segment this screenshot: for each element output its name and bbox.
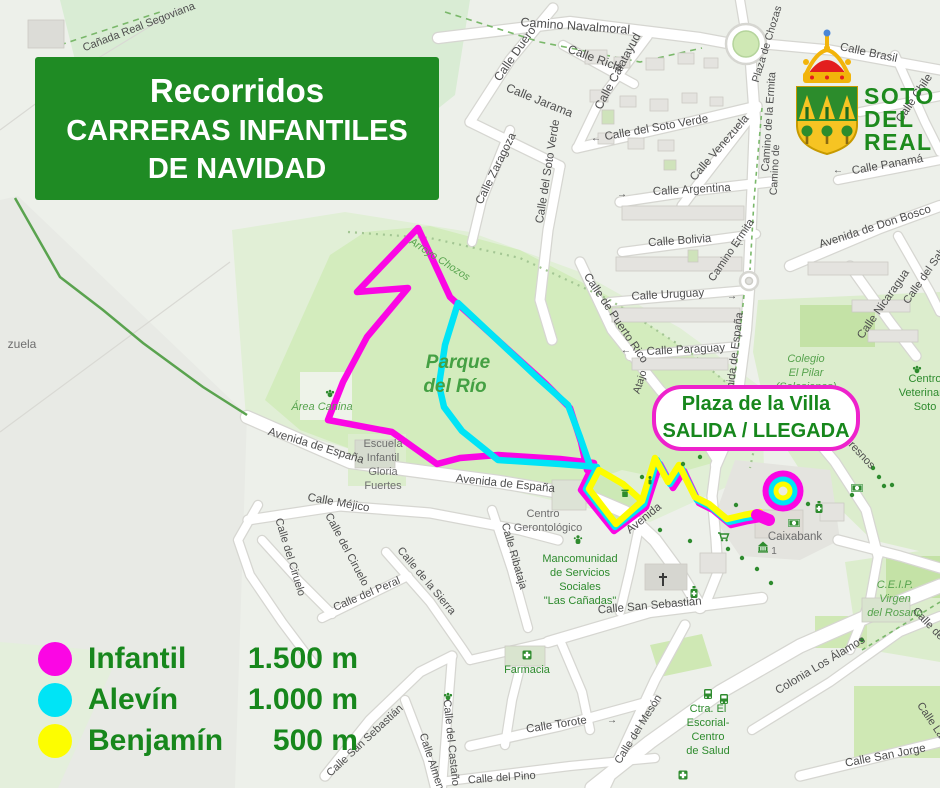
map-label: Calle del Ciruelo (322, 511, 370, 588)
route-legend: Infantil 1.500 m Alevín 1.000 m Benjamín… (38, 642, 358, 758)
map-label: Gloria (368, 466, 398, 478)
roundabout-center (733, 31, 759, 57)
building (710, 97, 723, 106)
tree-dot (698, 455, 702, 459)
building (646, 58, 664, 70)
start-finish-marker (779, 487, 788, 496)
building (808, 262, 888, 275)
road-segment (740, 0, 744, 24)
map-label: Área Canina (290, 400, 352, 413)
title-banner: Recorridos CARRERAS INFANTILES DE NAVIDA… (35, 57, 439, 200)
map-label: → (607, 715, 617, 726)
building (612, 308, 740, 322)
map-label: Calle Argentina (653, 182, 732, 198)
legend-label: Infantil (88, 642, 238, 676)
map-label: ← (735, 238, 745, 249)
map-label: Gerontológico (514, 522, 583, 534)
building (602, 110, 614, 124)
building (688, 250, 698, 262)
map-label: Caixabank (768, 531, 823, 543)
map-label: Camino de (768, 144, 783, 195)
legend-row-alevin: Alevín 1.000 m (38, 683, 358, 717)
money-icon (788, 519, 800, 527)
tree-dot (688, 539, 692, 543)
map-label: Veterinario (899, 387, 940, 399)
legend-distance: 1.500 m (238, 642, 358, 676)
legend-row-benjamin: Benjamín 500 m (38, 724, 358, 758)
cross-icon (523, 651, 532, 660)
alevin-color-dot (38, 683, 72, 717)
tree-dot (726, 547, 730, 551)
legend-label: Benjamín (88, 724, 238, 758)
building (650, 99, 668, 111)
callout-line-2: SALIDA / LLEGADA (662, 418, 849, 445)
building (678, 53, 694, 64)
bus-icon (704, 689, 712, 699)
road-segment (386, 552, 470, 660)
title-line-2: CARRERAS INFANTILES (66, 115, 408, 148)
map-label: Avenida de Don Bosco (818, 203, 933, 251)
tree-dot (882, 484, 886, 488)
title-line-1: Recorridos (150, 72, 324, 110)
map-label: zuela (8, 337, 37, 351)
map-label: Colegio (787, 353, 824, 365)
map-label: Farmacia (504, 664, 551, 676)
people-icon (574, 535, 582, 544)
building (28, 20, 64, 48)
map-label: Virgen (879, 593, 911, 605)
building (628, 138, 644, 149)
money-icon (851, 484, 863, 492)
map-label: → (727, 291, 737, 302)
map-label: Escuela (363, 438, 403, 450)
tree-dot (681, 462, 685, 466)
legend-distance: 500 m (238, 724, 358, 758)
map-label: C.E.I.P. (877, 579, 913, 591)
map-label: Centro (908, 373, 940, 385)
tree-dot (890, 483, 894, 487)
tree-dot (740, 556, 744, 560)
legend-distance: 1.000 m (238, 683, 358, 717)
building (658, 140, 674, 151)
map-label: → (617, 189, 627, 200)
map-label: Soto (914, 401, 937, 413)
tree-dot (658, 528, 662, 532)
map-label: Infantil (367, 452, 399, 464)
map-label: ← (591, 133, 601, 144)
map-label: Centro (691, 731, 724, 743)
map-label: Sociales (559, 581, 601, 593)
map-label: de Servicios (550, 567, 610, 579)
map-label: de Salud (686, 745, 729, 757)
building (620, 96, 636, 107)
map-label: Calle del Soto Verde (604, 113, 709, 143)
tree-dot (806, 502, 810, 506)
legend-label: Alevín (88, 683, 238, 717)
map-label: ← (833, 165, 843, 176)
map-label: Parque (426, 352, 491, 373)
map-label: Fuertes (364, 480, 402, 492)
title-line-3: DE NAVIDAD (148, 153, 326, 186)
roundabout-center (746, 278, 753, 285)
building (664, 160, 676, 170)
benjamin-color-dot (38, 724, 72, 758)
tree-dot (877, 475, 881, 479)
tree-dot (850, 493, 854, 497)
person-icon (649, 476, 652, 484)
map-label: El Pilar (789, 367, 825, 379)
building (704, 58, 718, 68)
infantil-color-dot (38, 642, 72, 676)
map-label: Escorial- (687, 717, 730, 729)
map-label: Centro (526, 508, 559, 520)
tree-dot (769, 581, 773, 585)
map-label: Mancomunidad (542, 553, 617, 565)
legend-row-infantil: Infantil 1.500 m (38, 642, 358, 676)
map-label: Calle Uruguay (631, 287, 705, 303)
route-end-cap (757, 515, 769, 520)
map-label: ← (621, 345, 631, 356)
building (682, 93, 697, 103)
shield-icon (797, 87, 857, 154)
road-segment (749, 64, 755, 272)
start-finish-callout: Plaza de la Villa SALIDA / LLEGADA (652, 385, 860, 451)
tree-dot (734, 503, 738, 507)
map-label: Calle Zaragoza (474, 130, 519, 206)
building (700, 553, 726, 573)
trash-icon (621, 490, 628, 497)
building (622, 206, 744, 220)
callout-line-1: Plaza de la Villa (682, 391, 831, 418)
cross-icon (679, 771, 688, 780)
map-label: del Río (423, 376, 486, 397)
tree-dot (755, 567, 759, 571)
map-label: Ctra. El (690, 703, 727, 715)
logo-text-real: REAL (864, 129, 933, 155)
tree-dot (640, 475, 644, 479)
building (820, 503, 844, 521)
building (868, 330, 918, 342)
map-label: Calle Bolivia (648, 233, 713, 249)
map-label: 1 (771, 546, 777, 557)
map-label: Calle Jarama (504, 81, 575, 121)
